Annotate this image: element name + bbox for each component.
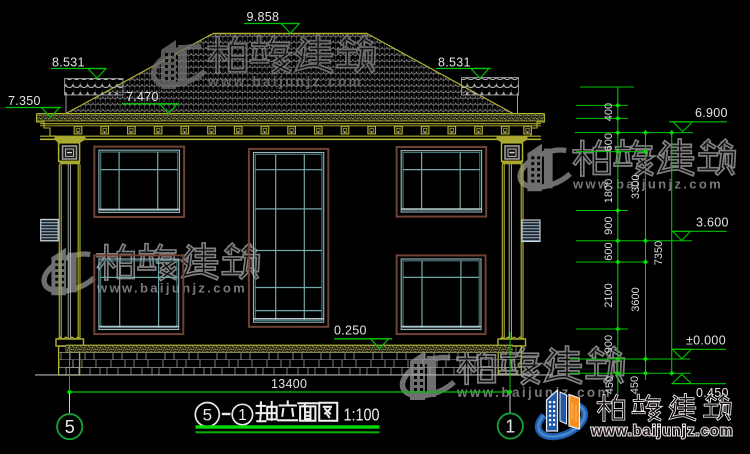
svg-text:1:100: 1:100 [344,405,380,425]
svg-text:2100: 2100 [603,283,615,307]
svg-text:3300: 3300 [630,174,642,198]
svg-text:7350: 7350 [653,241,665,265]
svg-text:5: 5 [203,406,212,425]
svg-text:7.350: 7.350 [8,94,41,108]
svg-text:900: 900 [603,335,615,353]
svg-text:1: 1 [505,417,515,437]
svg-text:±0.000: ±0.000 [686,334,726,348]
svg-text:9.858: 9.858 [247,10,280,24]
svg-text:450: 450 [604,376,616,394]
svg-text:7.470: 7.470 [126,90,159,104]
svg-text:3.600: 3.600 [696,216,729,230]
svg-text:1800: 1800 [603,179,615,203]
svg-text:600: 600 [603,242,615,260]
svg-text:3600: 3600 [630,287,642,311]
svg-text:www.baijunjz.com: www.baijunjz.com [590,424,734,440]
svg-text:450: 450 [629,376,641,394]
svg-text:900: 900 [603,217,615,235]
svg-text:5: 5 [65,417,75,437]
svg-text:1: 1 [238,407,247,424]
svg-text:600: 600 [603,133,615,151]
svg-text:8.531: 8.531 [52,56,85,70]
svg-text:8.531: 8.531 [438,56,471,70]
svg-text:400: 400 [603,103,615,121]
svg-text:6.900: 6.900 [695,106,728,120]
svg-text:13400: 13400 [271,377,307,391]
svg-text:0.250: 0.250 [334,324,367,338]
